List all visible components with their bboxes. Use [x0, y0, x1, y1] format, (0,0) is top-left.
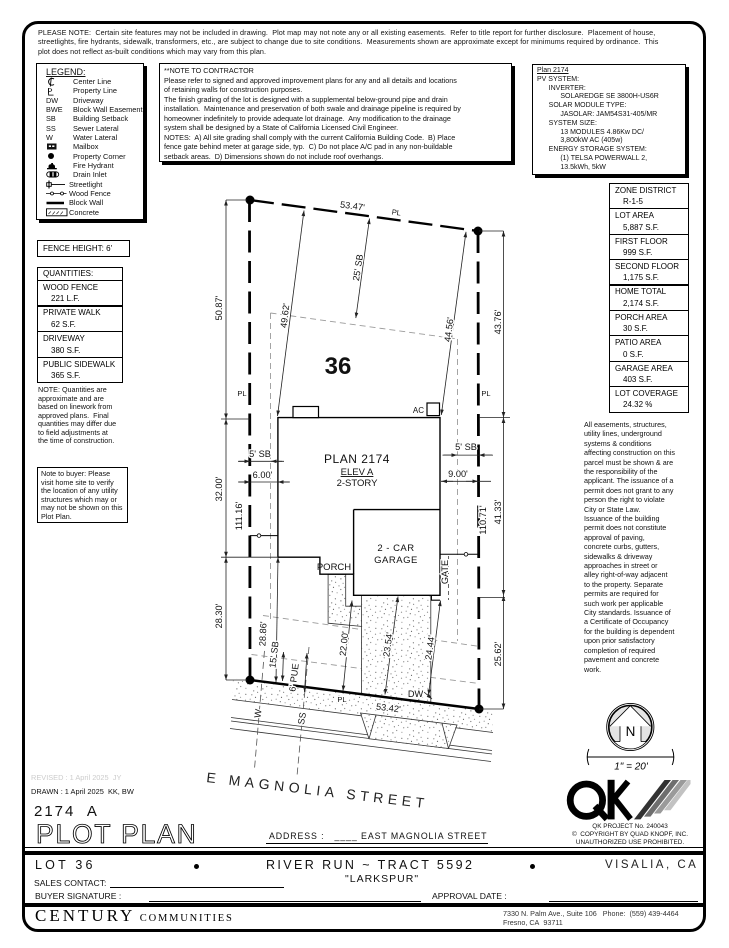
svg-text:43.76': 43.76' [493, 309, 503, 334]
svg-text:AC: AC [413, 406, 424, 415]
svg-text:PL: PL [481, 389, 490, 398]
svg-text:32.00': 32.00' [214, 476, 224, 501]
svg-text:PLOT PLAN: PLOT PLAN [36, 819, 198, 849]
svg-text:W: W [252, 708, 263, 718]
svg-text:SS: SS [296, 712, 308, 726]
svg-text:24.44': 24.44' [423, 634, 436, 660]
svg-text:PL: PL [391, 207, 401, 217]
svg-text:28.30': 28.30' [214, 603, 224, 628]
svg-text:PLAN 2174: PLAN 2174 [324, 452, 390, 466]
svg-text:111.16': 111.16' [234, 502, 244, 531]
svg-text:25.62': 25.62' [493, 641, 503, 666]
svg-text:GARAGE: GARAGE [374, 555, 418, 566]
svg-text:PL: PL [337, 695, 346, 704]
svg-text:6.00': 6.00' [253, 470, 273, 480]
svg-text:9.00': 9.00' [448, 469, 468, 479]
svg-text:5' SB: 5' SB [455, 442, 477, 452]
svg-text:GATE: GATE [440, 560, 450, 584]
svg-text:DW: DW [408, 689, 424, 699]
svg-text:36: 36 [325, 353, 352, 380]
svg-text:28.86': 28.86' [257, 621, 268, 646]
svg-text:N: N [626, 724, 636, 739]
svg-text:25' SB: 25' SB [351, 254, 365, 282]
svg-text:ELEV A: ELEV A [341, 467, 374, 478]
svg-text:41.33': 41.33' [493, 499, 503, 524]
svg-text:2-STORY: 2-STORY [337, 478, 378, 489]
svg-text:50.87': 50.87' [214, 295, 224, 320]
svg-text:5' SB: 5' SB [249, 449, 271, 459]
svg-text:15' SB: 15' SB [267, 641, 280, 669]
svg-text:PORCH: PORCH [317, 562, 351, 573]
svg-text:22.00': 22.00' [338, 631, 351, 657]
svg-text:53.47': 53.47' [339, 199, 365, 212]
svg-text:PL: PL [237, 389, 246, 398]
svg-text:110.71': 110.71' [478, 505, 488, 534]
svg-text:1" = 20': 1" = 20' [614, 762, 649, 773]
svg-text:E MAGNOLIA STREET: E MAGNOLIA STREET [206, 769, 430, 811]
svg-text:2 - CAR: 2 - CAR [377, 543, 414, 554]
